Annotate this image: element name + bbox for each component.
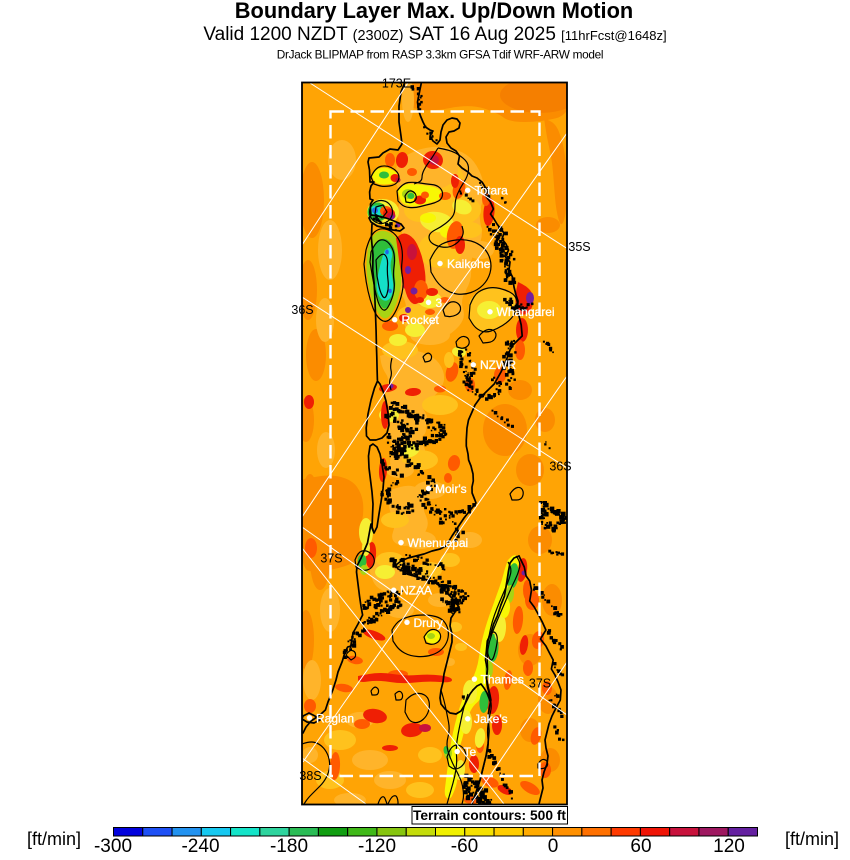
svg-text:60: 60 [630,836,651,857]
svg-text:NZWR: NZWR [480,358,516,372]
svg-text:Terrain contours: 500 ft: Terrain contours: 500 ft [413,808,566,823]
svg-text:0: 0 [548,836,559,857]
svg-text:NZAA: NZAA [400,584,432,598]
svg-text:Boundary Layer Max. Up/Down Mo: Boundary Layer Max. Up/Down Motion [235,0,633,23]
svg-text:-240: -240 [181,836,219,857]
svg-text:173E: 173E [382,77,411,91]
svg-text:Totara: Totara [475,184,509,198]
svg-text:35S: 35S [568,240,590,254]
svg-text:Te: Te [464,745,477,759]
svg-text:Thames: Thames [481,673,524,687]
svg-text:[ft/min]: [ft/min] [27,829,81,849]
svg-text:-120: -120 [358,836,396,857]
svg-text:Whenuapai: Whenuapai [408,536,469,550]
svg-text:37S: 37S [320,552,342,566]
svg-text:36S: 36S [549,460,571,474]
svg-text:Kaikohe: Kaikohe [447,257,491,271]
svg-text:Jake's: Jake's [474,712,508,726]
svg-text:Rocket: Rocket [402,313,440,327]
svg-text:Drury: Drury [414,616,443,630]
svg-text:Raglan: Raglan [316,712,354,726]
svg-text:-180: -180 [270,836,308,857]
svg-text:DrJack BLIPMAP from RASP 3.3km: DrJack BLIPMAP from RASP 3.3km GFSA Tdif… [277,48,603,62]
svg-text:Whangarei: Whangarei [497,305,555,319]
svg-text:Moir's: Moir's [435,482,467,496]
svg-text:[ft/min]: [ft/min] [785,829,839,849]
svg-text:3: 3 [436,296,443,310]
svg-text:-300: -300 [94,836,132,857]
svg-text:Valid 1200 NZDT (2300Z) SAT 16: Valid 1200 NZDT (2300Z) SAT 16 Aug 2025 … [203,24,666,45]
svg-text:37S: 37S [529,677,551,691]
svg-text:120: 120 [713,836,745,857]
svg-text:-60: -60 [451,836,478,857]
